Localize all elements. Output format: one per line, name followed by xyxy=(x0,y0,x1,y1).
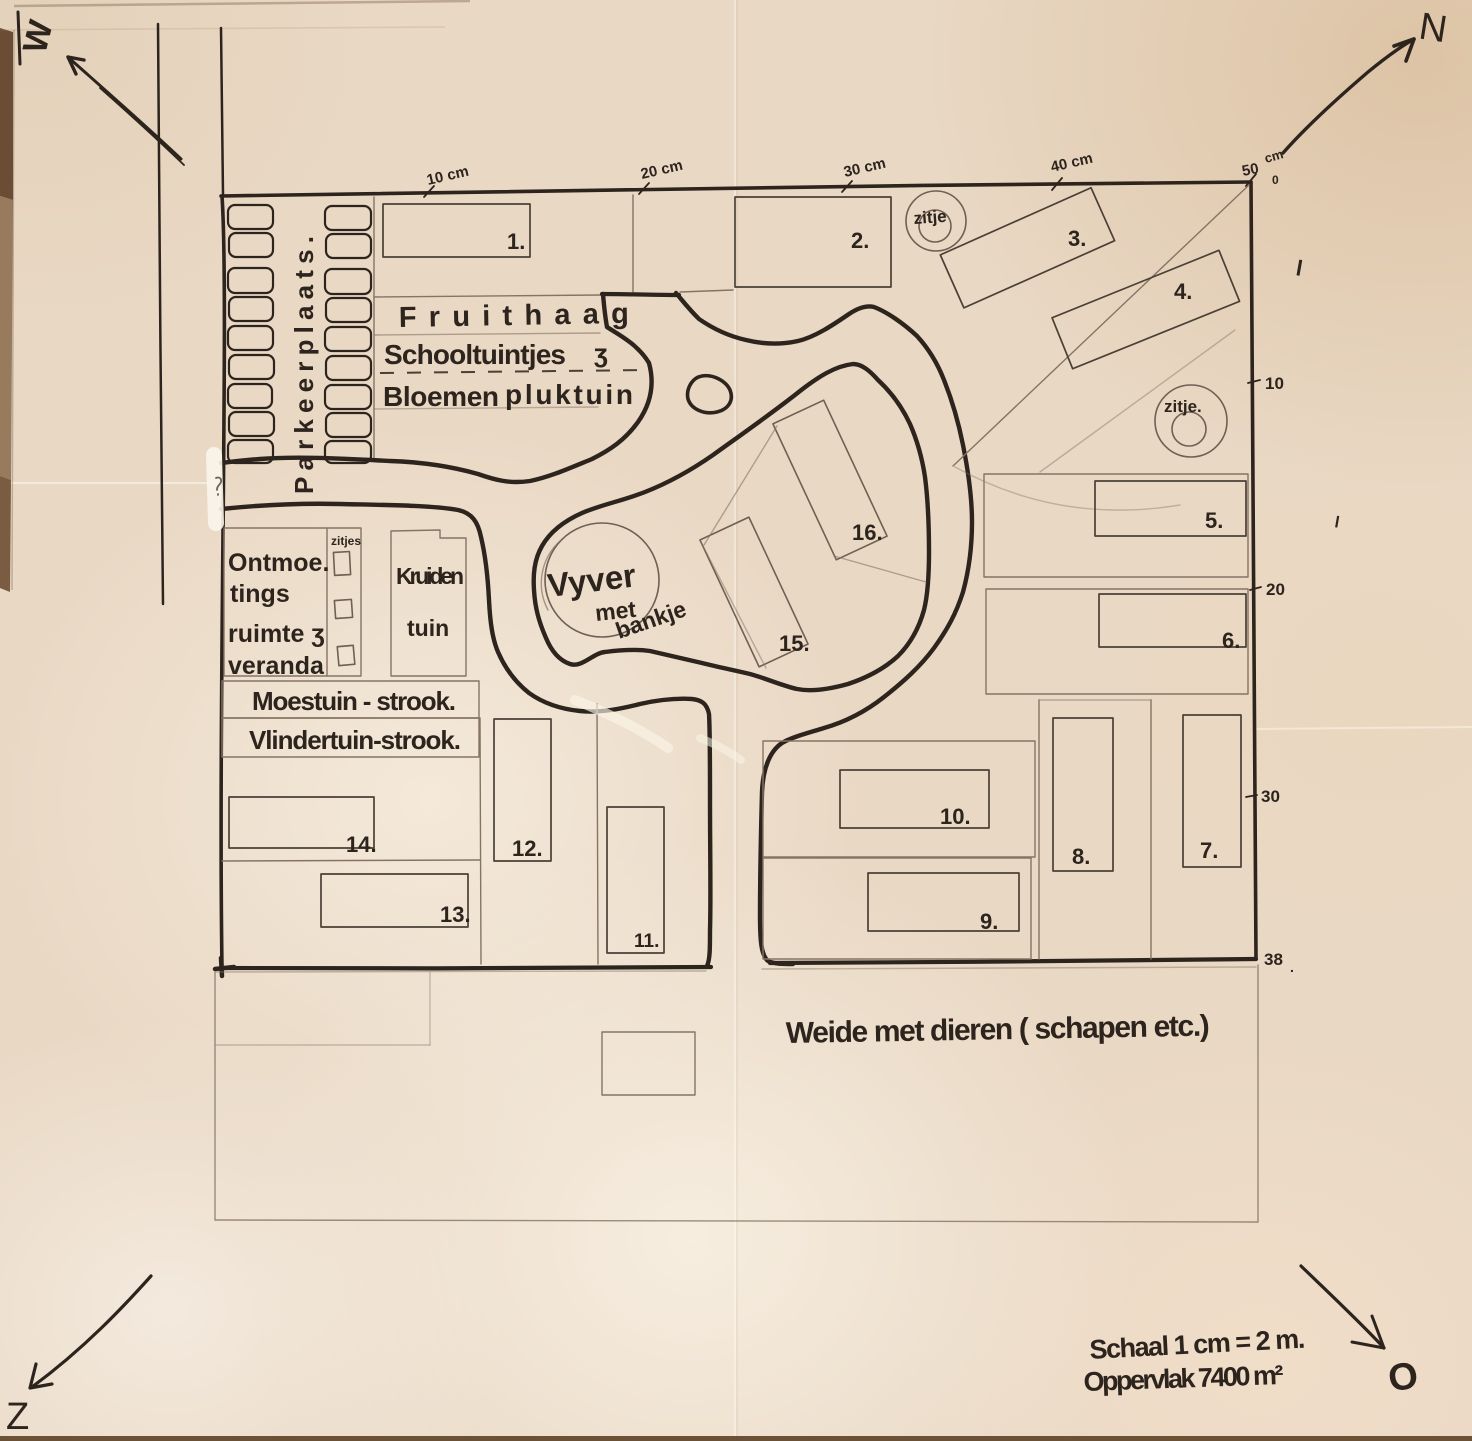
svg-text:14.: 14. xyxy=(346,832,377,857)
svg-text:O: O xyxy=(1385,1354,1421,1400)
svg-text:15.: 15. xyxy=(779,631,810,656)
svg-text:zitjes: zitjes xyxy=(331,534,361,548)
svg-text:40 cm: 40 cm xyxy=(1049,150,1094,176)
svg-text:3.: 3. xyxy=(1068,226,1086,251)
svg-text:Fruithaag: Fruithaag xyxy=(399,298,630,334)
svg-text:10.: 10. xyxy=(940,804,971,829)
svg-text:Schooltuintjes: Schooltuintjes xyxy=(384,339,566,370)
svg-text:Vlindertuin-strook.: Vlindertuin-strook. xyxy=(249,725,461,755)
svg-text:20 cm: 20 cm xyxy=(639,157,684,183)
svg-text:Kruiden: Kruiden xyxy=(396,563,464,589)
svg-text:20: 20 xyxy=(1266,580,1285,599)
svg-text:10: 10 xyxy=(1265,374,1284,393)
svg-text:16.: 16. xyxy=(852,520,883,545)
svg-text:Moestuin - strook.: Moestuin - strook. xyxy=(252,686,456,716)
svg-text:2.: 2. xyxy=(851,228,869,253)
svg-text:Bloemen: Bloemen xyxy=(383,381,499,412)
svg-text:9.: 9. xyxy=(980,909,998,934)
svg-text:zitje: zitje xyxy=(913,207,947,228)
svg-text:W: W xyxy=(16,16,61,57)
svg-text:tings: tings xyxy=(230,580,290,608)
svg-text:30 cm: 30 cm xyxy=(842,155,887,181)
svg-text:7.: 7. xyxy=(1200,838,1218,863)
svg-text:ruimte ʒ: ruimte ʒ xyxy=(228,620,325,648)
svg-text:pluktuin: pluktuin xyxy=(505,379,633,410)
svg-text:50: 50 xyxy=(1241,160,1261,180)
svg-text:.: . xyxy=(1290,959,1294,975)
svg-text:38: 38 xyxy=(1264,950,1283,969)
svg-text:11.: 11. xyxy=(634,931,659,952)
svg-text:Parkeerplaats.: Parkeerplaats. xyxy=(289,236,319,494)
svg-text:ʒ: ʒ xyxy=(594,338,608,368)
svg-text:30: 30 xyxy=(1261,787,1280,806)
svg-text:zitje.: zitje. xyxy=(1164,397,1202,416)
svg-text:5.: 5. xyxy=(1205,508,1223,533)
svg-text:Ontmoe.: Ontmoe. xyxy=(228,549,329,577)
svg-text:8.: 8. xyxy=(1072,844,1090,869)
svg-text:Schaal 1 cm = 2 m.: Schaal 1 cm = 2 m. xyxy=(1089,1324,1306,1365)
svg-text:Weide met dieren ( schapen etc: Weide met dieren ( schapen etc.) xyxy=(786,1010,1211,1050)
svg-text:1.: 1. xyxy=(507,229,525,254)
svg-text:Z: Z xyxy=(6,1396,29,1438)
svg-text:10 cm: 10 cm xyxy=(425,163,470,189)
svg-text:12.: 12. xyxy=(512,836,543,861)
svg-text:tuin: tuin xyxy=(407,615,449,641)
svg-text:veranda: veranda xyxy=(228,652,325,680)
svg-text:l: l xyxy=(1333,514,1340,532)
svg-text:N: N xyxy=(1416,6,1450,52)
svg-text:l: l xyxy=(1294,255,1304,281)
svg-text:6.: 6. xyxy=(1222,628,1240,653)
svg-text:4.: 4. xyxy=(1174,279,1192,304)
svg-text:Oppervlak 7400 m²: Oppervlak 7400 m² xyxy=(1083,1360,1284,1397)
svg-text:0: 0 xyxy=(1272,173,1279,187)
svg-text:13.: 13. xyxy=(440,902,471,927)
svg-text:cm: cm xyxy=(1263,146,1285,166)
